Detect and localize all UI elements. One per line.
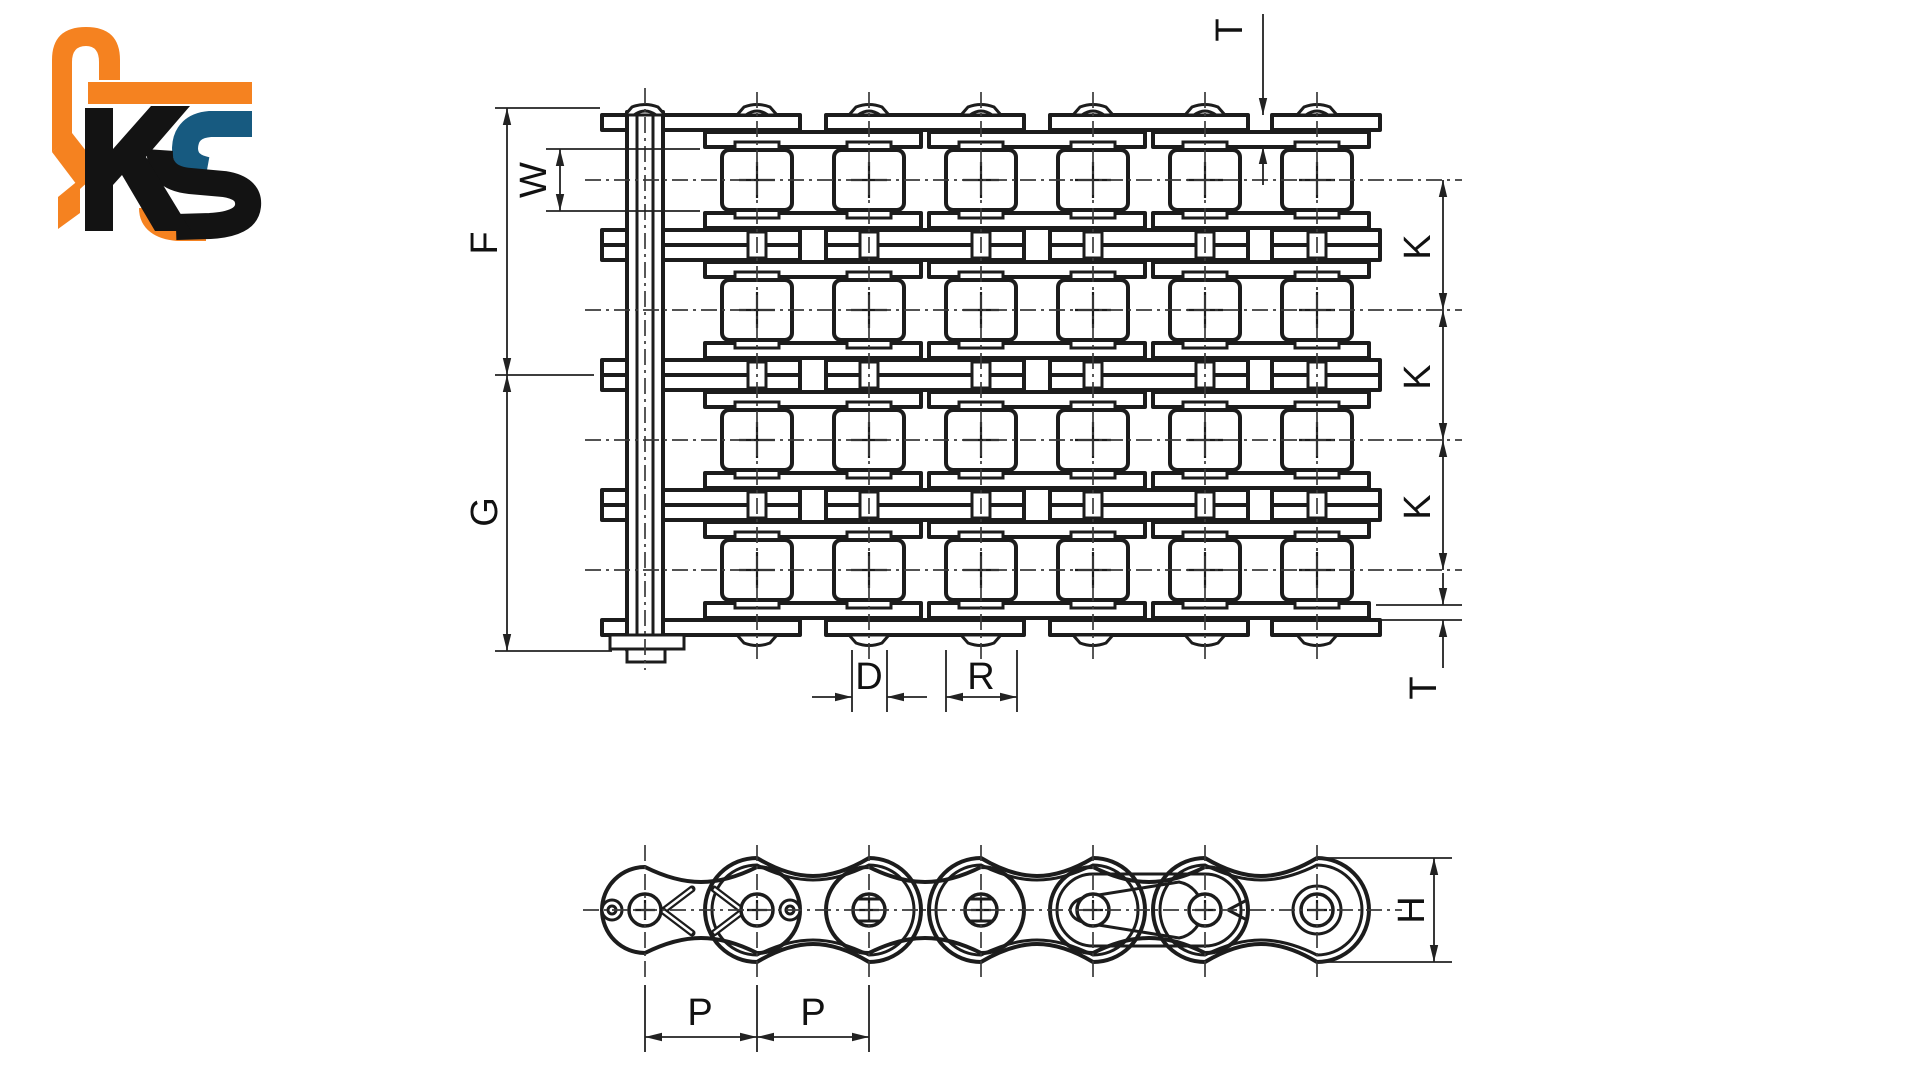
- arrowhead: [1439, 620, 1447, 637]
- dim-label-w: W: [513, 162, 555, 198]
- dim-label-p-2: P: [800, 992, 825, 1034]
- pin-link-plate: [826, 490, 1024, 505]
- arrowhead: [1439, 423, 1447, 440]
- pin-link-plate: [826, 375, 1024, 390]
- arrowhead: [503, 358, 511, 375]
- dim-label-t-bottom: T: [1403, 676, 1445, 699]
- pin-link-plate: [1050, 620, 1248, 635]
- chain-side-view: [583, 845, 1402, 977]
- arrowhead: [1430, 858, 1438, 875]
- spring-clip-arm-highlight: [714, 889, 743, 911]
- arrowhead: [645, 1033, 662, 1041]
- spring-clip-arm-highlight: [714, 911, 743, 933]
- roller-chain-technical-drawing: T W F G K K K T D R P P H: [0, 0, 1920, 1080]
- spring-clip-arm-highlight: [663, 889, 692, 911]
- arrowhead: [503, 375, 511, 392]
- pin-link-plate: [826, 620, 1024, 635]
- arrowhead: [1439, 440, 1447, 457]
- dim-label-t-top: T: [1209, 18, 1251, 41]
- arrowhead: [1259, 98, 1267, 115]
- pin-foot-end: [627, 649, 665, 662]
- logo-letter-s-blue: [185, 124, 252, 170]
- arrowhead: [1439, 293, 1447, 310]
- dim-label-r: R: [967, 656, 994, 698]
- pin-link-plate: [1050, 230, 1248, 245]
- arrowhead: [503, 108, 511, 125]
- logo: [52, 27, 252, 231]
- pin-link-plate: [1050, 115, 1248, 130]
- pin-link-plate: [826, 245, 1024, 260]
- dim-label-p-1: P: [687, 992, 712, 1034]
- dim-label-h: H: [1391, 896, 1433, 923]
- arrowhead: [1259, 147, 1267, 164]
- chain-plan-view: [585, 88, 1462, 670]
- arrowhead: [556, 194, 564, 211]
- pin-link-plate: [1272, 115, 1380, 130]
- arrowhead: [946, 693, 963, 701]
- arrowhead: [1439, 553, 1447, 570]
- dim-label-k-1: K: [1397, 234, 1439, 259]
- arrowhead: [1439, 180, 1447, 197]
- pin-link-plate: [1050, 375, 1248, 390]
- arrowhead: [835, 693, 852, 701]
- logo-orange-corner: [58, 179, 80, 229]
- dim-label-k-3: K: [1397, 494, 1439, 519]
- pin-link-plate: [1050, 245, 1248, 260]
- pin-link-plate: [1050, 505, 1248, 520]
- pin-link-plate: [1050, 360, 1248, 375]
- pin-link-plate: [1050, 490, 1248, 505]
- arrowhead: [887, 693, 904, 701]
- arrowhead: [1439, 310, 1447, 327]
- arrowhead: [757, 1033, 774, 1041]
- arrowhead: [1439, 588, 1447, 605]
- logo-orange-bar: [88, 82, 252, 104]
- arrowhead: [556, 149, 564, 166]
- pin-link-plate: [826, 115, 1024, 130]
- pin-foot: [610, 635, 684, 649]
- spring-clip-arm-highlight: [663, 911, 692, 933]
- pin-link-plate: [1272, 620, 1380, 635]
- arrowhead: [1430, 945, 1438, 962]
- dim-label-g: G: [464, 497, 506, 527]
- arrowhead: [740, 1033, 757, 1041]
- pin-link-plate: [826, 360, 1024, 375]
- dim-label-k-2: K: [1397, 364, 1439, 389]
- arrowhead: [503, 634, 511, 651]
- pin-link-plate: [826, 505, 1024, 520]
- dim-label-d: D: [855, 656, 882, 698]
- arrowhead: [852, 1033, 869, 1041]
- arrowhead: [1000, 693, 1017, 701]
- dim-label-f: F: [464, 231, 506, 254]
- pin-link-plate: [826, 230, 1024, 245]
